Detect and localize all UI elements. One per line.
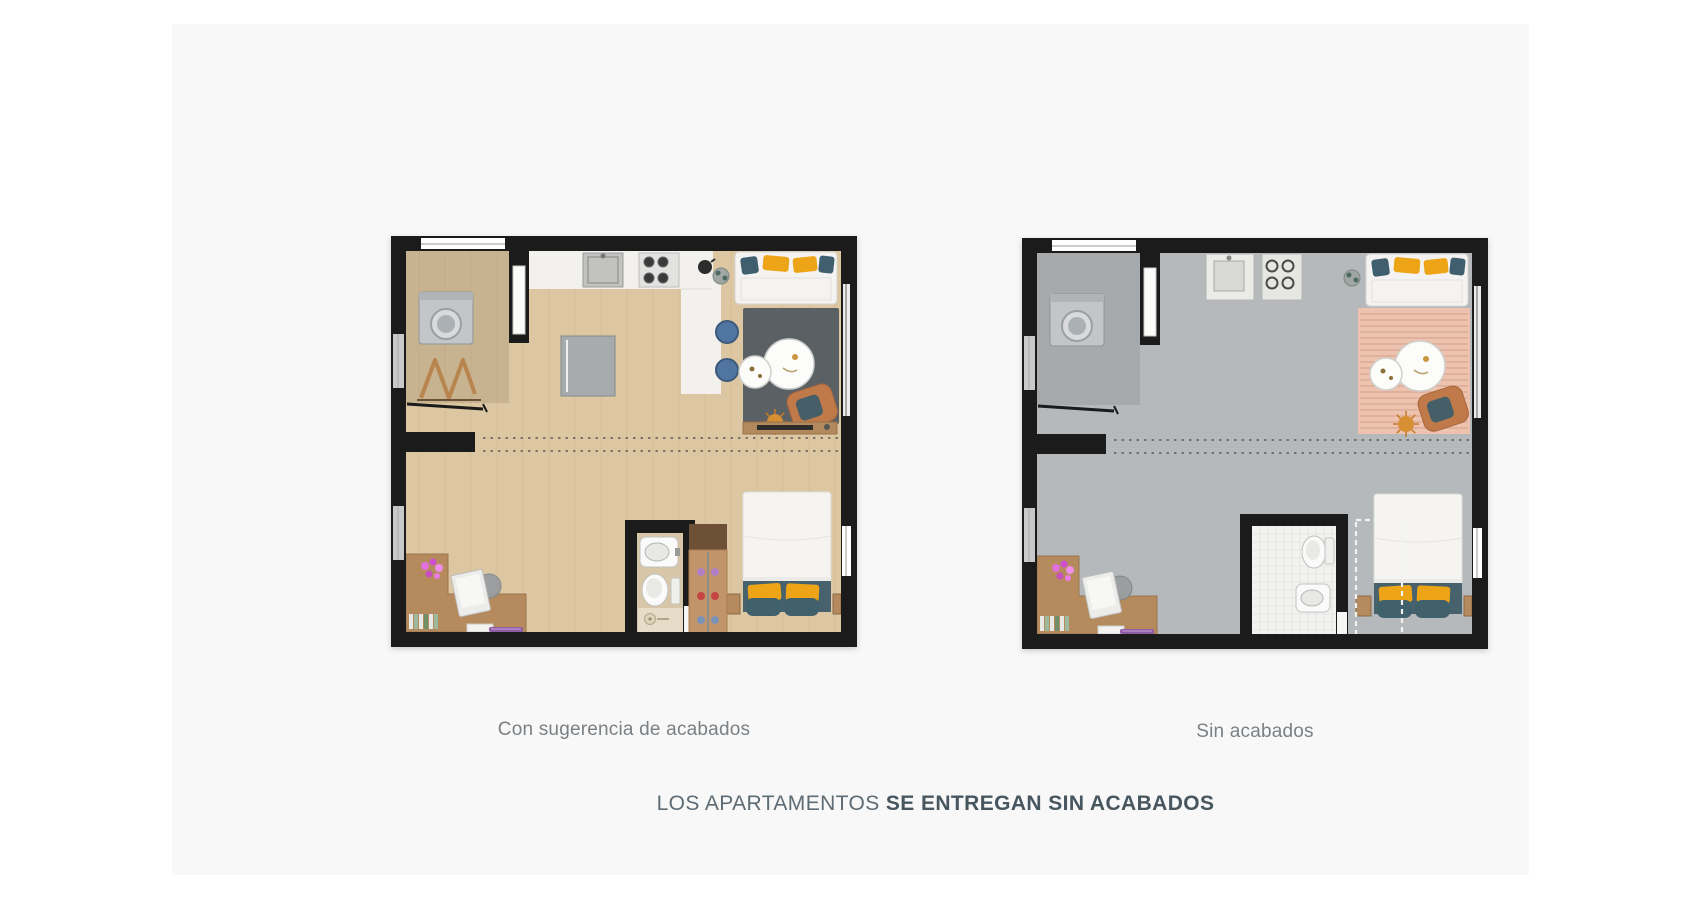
bathroom: [625, 520, 695, 647]
bathroom: [1240, 514, 1348, 646]
window-right: [1473, 528, 1482, 578]
shower: [638, 608, 683, 632]
headline: LOS APARTAMENTOS SE ENTREGAN SIN ACABADO…: [344, 792, 1527, 816]
plant: [1344, 270, 1360, 286]
plant: [713, 268, 729, 284]
window-left-lower: [1024, 508, 1035, 562]
window-top: [1052, 240, 1136, 251]
toilet: [1302, 536, 1334, 568]
headline-regular: LOS APARTAMENTOS: [657, 792, 886, 815]
window-left-upper: [393, 334, 404, 388]
bathroom-sink: [640, 537, 680, 567]
sideboard: [743, 422, 837, 434]
headline-bold: SE ENTREGAN SIN ACABADOS: [886, 792, 1215, 815]
stove-module: [1262, 254, 1302, 300]
balcony-glazing: [1474, 286, 1481, 418]
content-panel: Con sugerencia de acabados Sin acabados …: [172, 24, 1529, 875]
caption-finished: Con sugerencia de acabados: [391, 719, 857, 741]
fridge: [561, 336, 615, 396]
window-top: [421, 238, 505, 249]
floorplan-finished: [391, 236, 857, 647]
washing-machine: [1050, 294, 1104, 346]
stove: [639, 253, 679, 287]
window-slot: [1144, 268, 1156, 336]
desk-trinket: [1120, 629, 1154, 634]
washing-machine: [419, 292, 473, 344]
caption-unfinished: Sin acabados: [1022, 721, 1488, 743]
desk-trinket: [489, 627, 523, 632]
floor-plant: [1393, 411, 1419, 437]
toilet: [642, 574, 680, 606]
wardrobe: [689, 524, 727, 644]
sofa: [1366, 254, 1468, 306]
bathroom-sink: [1296, 584, 1330, 612]
window-left-upper: [1024, 336, 1035, 390]
kitchen-sink: [583, 253, 623, 287]
sofa: [735, 252, 837, 304]
window-slot: [513, 266, 525, 334]
window-right: [842, 526, 851, 576]
balcony-glazing: [843, 284, 850, 416]
window-left-lower: [393, 506, 404, 560]
brochure-page: { "page": { "background": "#ffffff", "pa…: [0, 0, 1701, 900]
kitchen-sink-module: [1206, 254, 1254, 300]
floorplan-unfinished: [1022, 238, 1488, 649]
